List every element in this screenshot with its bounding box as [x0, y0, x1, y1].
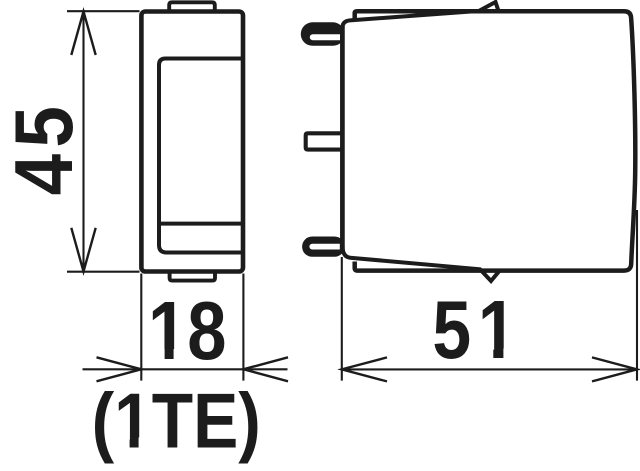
svg-text:45: 45 [0, 100, 90, 196]
svg-text:51: 51 [432, 284, 523, 376]
svg-text:(1TE): (1TE) [92, 378, 261, 465]
svg-text:18: 18 [148, 285, 226, 378]
